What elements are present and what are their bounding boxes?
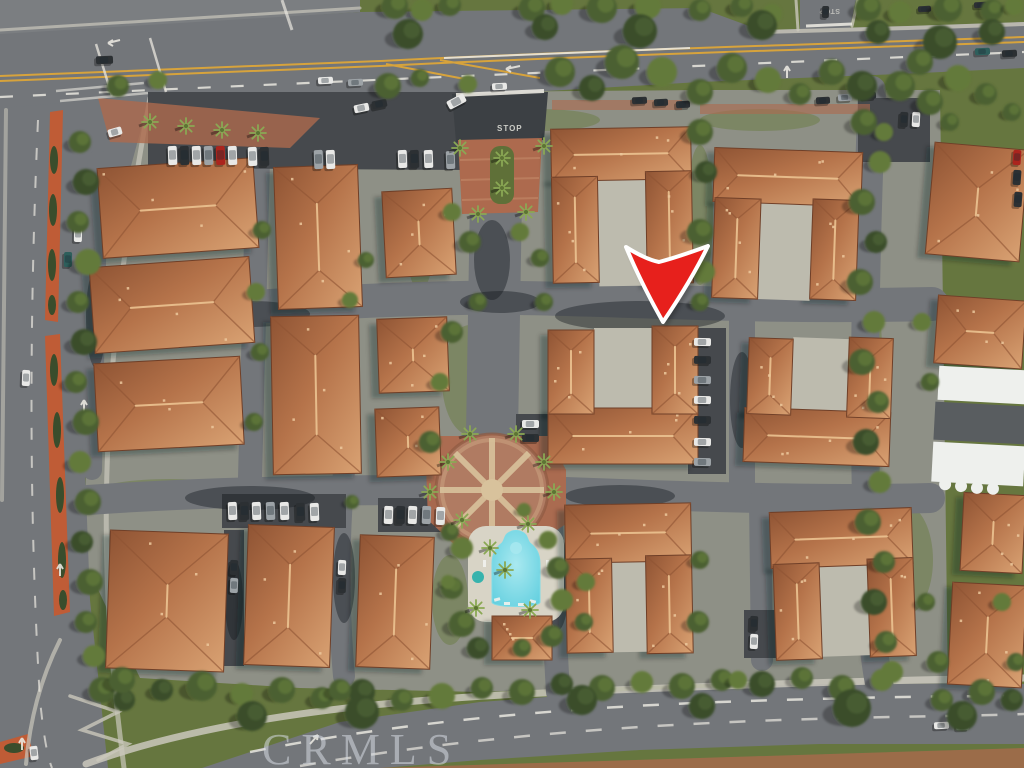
parked-car [973, 48, 990, 58]
parked-car [910, 112, 921, 130]
parked-car [382, 506, 394, 526]
building [97, 158, 259, 259]
parked-car [264, 502, 276, 522]
parked-car [238, 502, 250, 522]
parked-car [246, 147, 258, 168]
parked-car [422, 150, 434, 170]
parked-car [490, 83, 507, 93]
parked-car [336, 578, 347, 595]
building [106, 530, 229, 672]
parked-car [258, 147, 270, 168]
parked-car [692, 338, 711, 348]
parked-car [692, 416, 711, 426]
parked-car [94, 56, 113, 67]
parked-car [434, 507, 446, 527]
parked-car [226, 146, 238, 167]
courtyard-drive [612, 560, 648, 653]
parked-car [748, 634, 759, 651]
parked-car [20, 370, 31, 388]
building-roof [925, 142, 1024, 262]
parked-car [1011, 192, 1022, 210]
parked-car [214, 146, 226, 167]
entrance-pad [452, 92, 548, 142]
building [382, 188, 456, 278]
parked-car [406, 506, 418, 526]
parked-car [814, 97, 830, 107]
parked-car [346, 79, 363, 89]
parked-car [324, 150, 336, 171]
parked-car [166, 146, 178, 167]
parked-car [898, 112, 909, 130]
building [274, 165, 363, 310]
building [89, 257, 255, 354]
parked-car [202, 146, 214, 167]
parked-car [630, 97, 647, 107]
building [925, 142, 1024, 262]
building [934, 295, 1024, 369]
building [94, 356, 244, 452]
parked-car [520, 434, 539, 444]
parked-car [278, 502, 290, 522]
parked-car [250, 502, 262, 522]
parked-car [308, 503, 320, 523]
building [244, 525, 335, 668]
building [356, 535, 435, 670]
parked-car [520, 420, 539, 430]
white-roof-buildings [931, 366, 1024, 497]
building [710, 147, 863, 302]
parked-car [178, 146, 190, 167]
parked-car [408, 150, 420, 170]
building [960, 492, 1024, 573]
parked-car [748, 616, 759, 633]
parked-car [1000, 50, 1017, 60]
parked-car [692, 376, 711, 386]
courtyard-drive [758, 199, 813, 301]
parked-car [1010, 150, 1021, 168]
parked-car [336, 560, 347, 577]
parked-car [692, 458, 711, 468]
courtyard-drive [594, 328, 652, 414]
building [947, 582, 1024, 688]
building [271, 315, 362, 475]
parked-car [190, 146, 202, 167]
parked-car [228, 578, 239, 595]
parked-car [396, 150, 408, 170]
parked-car [316, 77, 333, 87]
parked-car [228, 560, 239, 577]
parked-car [692, 356, 711, 366]
aerial-photo: STOP STOP CRMLS [0, 0, 1024, 768]
parked-car [226, 502, 238, 522]
parked-car [1010, 170, 1021, 188]
spa-umbrella [472, 571, 484, 583]
watermark-text: CRMLS [262, 725, 461, 768]
parked-car [294, 503, 306, 523]
parked-car [394, 506, 406, 526]
parked-car [420, 506, 432, 526]
parked-car [312, 150, 324, 171]
parked-car [652, 99, 668, 109]
parked-car [692, 438, 711, 448]
courtyard-drive [791, 337, 850, 417]
stop-road-marking: STOP [497, 124, 523, 133]
building [548, 326, 698, 464]
parked-car [692, 396, 711, 406]
